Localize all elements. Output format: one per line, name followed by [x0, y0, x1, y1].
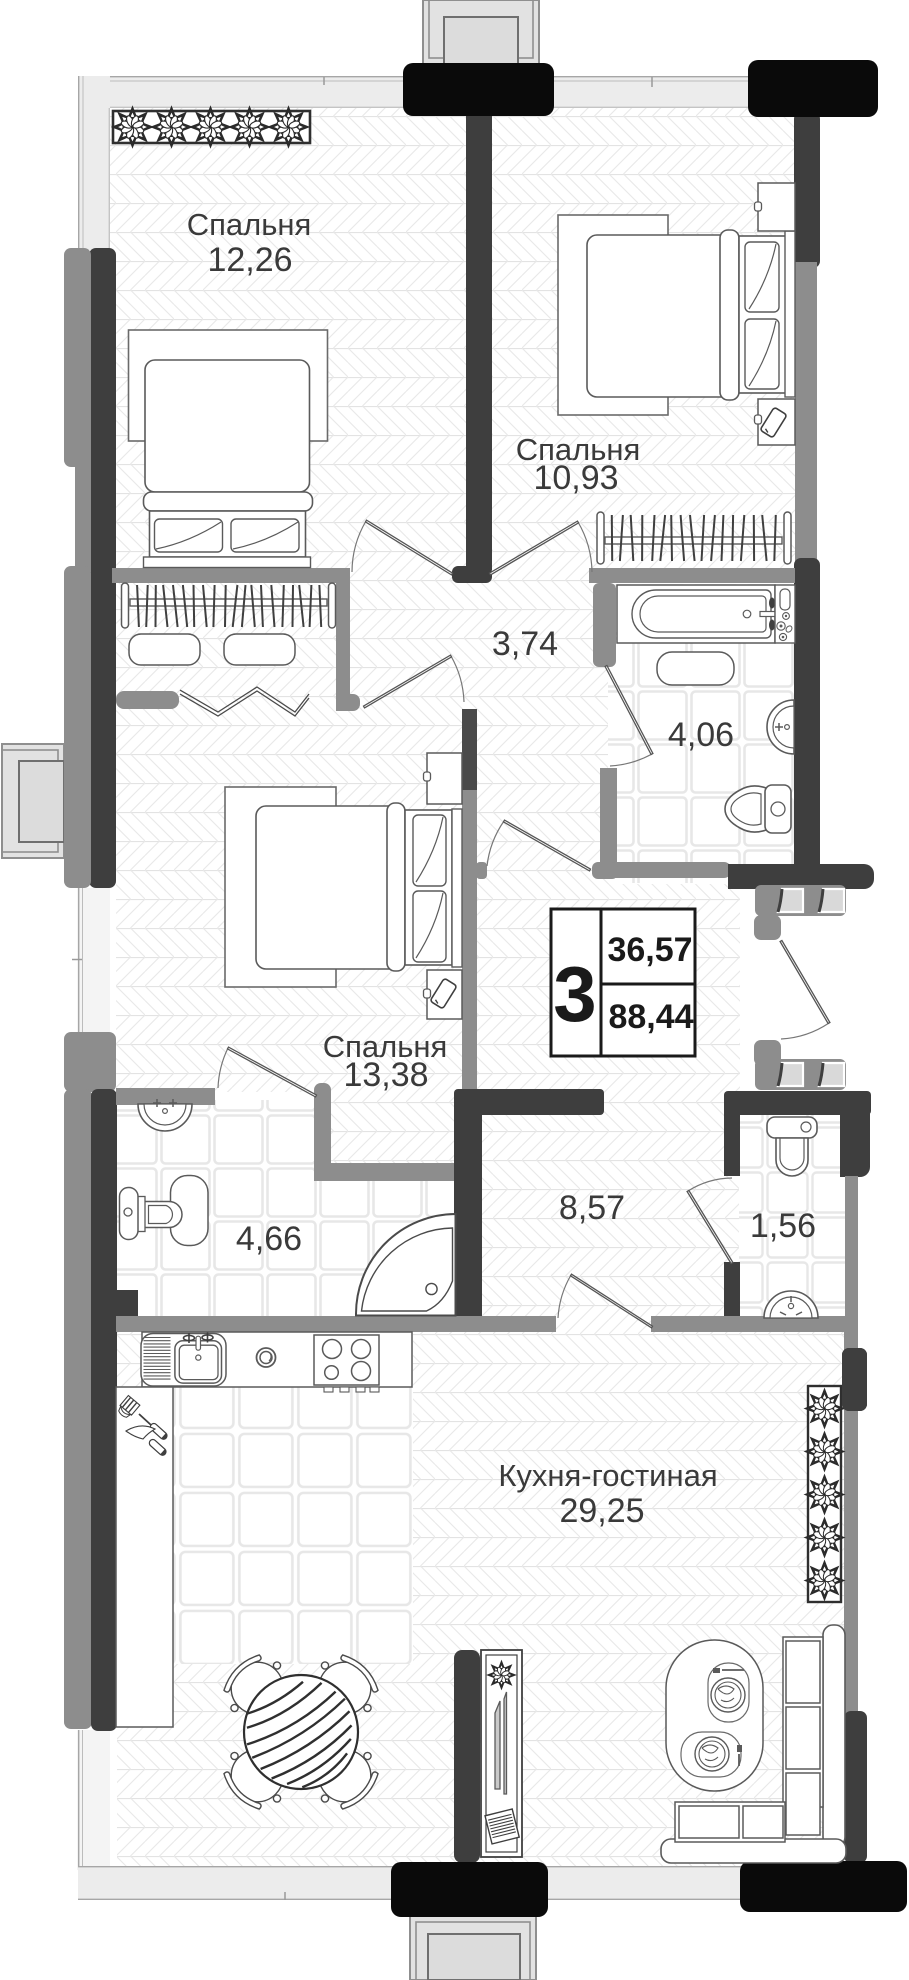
svg-text:Спальня: Спальня — [187, 207, 312, 242]
svg-text:4,66: 4,66 — [236, 1220, 302, 1258]
svg-text:4,06: 4,06 — [668, 716, 734, 754]
svg-text:88,44: 88,44 — [608, 998, 693, 1036]
svg-text:12,26: 12,26 — [207, 241, 292, 279]
svg-text:29,25: 29,25 — [559, 1492, 644, 1530]
svg-text:10,93: 10,93 — [533, 459, 618, 497]
svg-text:3,74: 3,74 — [492, 625, 558, 663]
svg-text:13,38: 13,38 — [343, 1056, 428, 1094]
svg-text:1,56: 1,56 — [750, 1207, 816, 1245]
svg-text:8,57: 8,57 — [559, 1189, 625, 1227]
svg-text:36,57: 36,57 — [607, 931, 692, 969]
svg-text:Кухня-гостиная: Кухня-гостиная — [498, 1458, 717, 1493]
svg-text:3: 3 — [553, 950, 596, 1038]
